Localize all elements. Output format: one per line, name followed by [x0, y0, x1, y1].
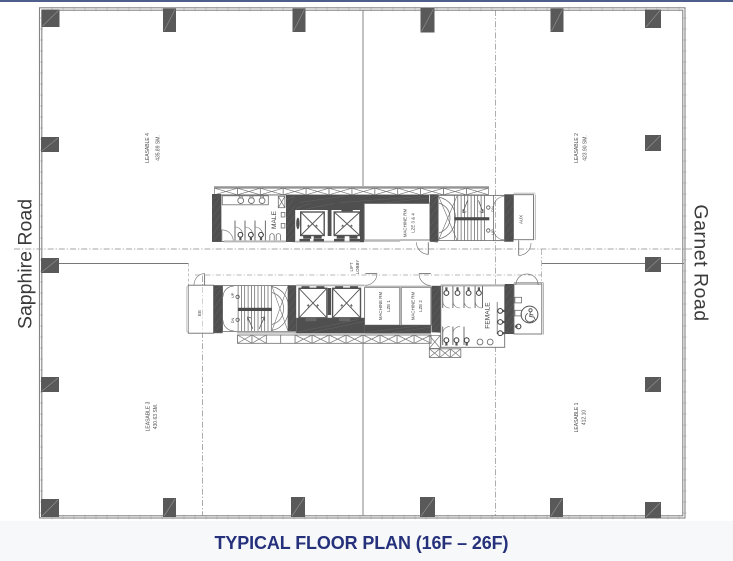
svg-text:MACHINE RM: MACHINE RM: [403, 209, 408, 238]
svg-text:EE: EE: [197, 310, 202, 316]
svg-text:LEASABLE 4: LEASABLE 4: [145, 133, 151, 163]
svg-text:FEMALE: FEMALE: [484, 302, 491, 329]
svg-text:LZE 1: LZE 1: [386, 300, 391, 312]
svg-text:LZE 2: LZE 2: [418, 300, 423, 312]
svg-text:412.10: 412.10: [582, 410, 588, 426]
svg-text:LIFT: LIFT: [349, 262, 354, 271]
svg-text:LEASABLE 3: LEASABLE 3: [145, 401, 151, 431]
svg-text:DN: DN: [230, 318, 235, 324]
svg-text:DN: DN: [490, 206, 495, 212]
svg-text:430.63 SM.: 430.63 SM.: [153, 404, 159, 430]
svg-text:Garnet Road: Garnet Road: [690, 204, 712, 321]
svg-text:MACHINE RM: MACHINE RM: [378, 292, 383, 321]
svg-text:LEASABLE 2: LEASABLE 2: [574, 133, 580, 163]
svg-text:435.89 SM.: 435.89 SM.: [156, 135, 162, 161]
svg-text:LEASABLE 1: LEASABLE 1: [574, 402, 580, 432]
svg-text:LOBBY: LOBBY: [355, 260, 360, 275]
svg-text:LZE 3 & 4: LZE 3 & 4: [411, 213, 416, 233]
svg-text:AUX: AUX: [518, 215, 523, 224]
svg-text:UP: UP: [230, 292, 235, 298]
svg-text:MACHINE RM: MACHINE RM: [410, 292, 415, 321]
svg-text:Sapphire Road: Sapphire Road: [15, 199, 37, 329]
svg-text:MALE: MALE: [271, 210, 278, 229]
svg-text:423.90 SM.: 423.90 SM.: [582, 135, 588, 161]
